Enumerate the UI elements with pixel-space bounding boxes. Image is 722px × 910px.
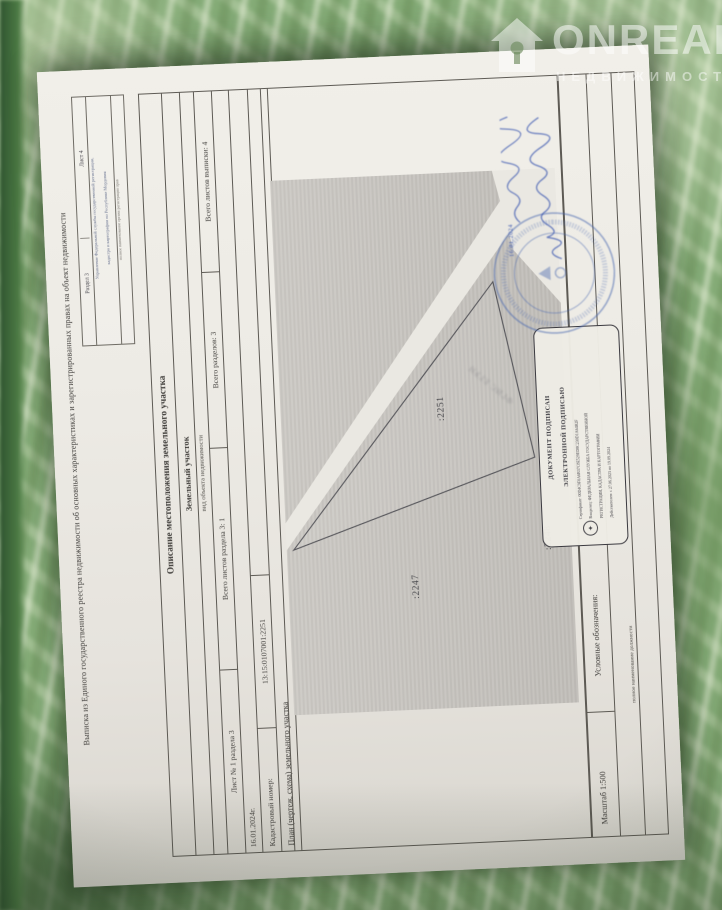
esign-box: ДОКУМЕНТ ПОДПИСАН ЭЛЕКТРОННОЙ ПОДПИСЬЮ ✦… [533,324,629,548]
parcel-label-2247: :2247 [411,574,422,599]
legend-label: Условные обозначения: [582,594,612,677]
document-paper: Выписка из Единого государственного реес… [37,45,685,888]
corner-sheet: Лист 4 [75,114,88,203]
document-content: Выписка из Единого государственного реес… [37,45,685,888]
brand-watermark: ONREALT [552,16,722,64]
house-icon [489,15,545,75]
carpet-dark-edge [0,0,26,910]
esign-header-line1: ДОКУМЕНТ ПОДПИСАН [541,328,559,546]
photo-canvas: Выписка из Единого государственного реес… [0,0,722,910]
brand-subtitle: НЕДВИЖИМОСТЬ [556,69,722,84]
parcel-label-2251: :2251 [436,396,447,421]
handwritten-signature-icon [498,75,599,269]
esign-emblem-icon: ✦ [583,520,599,536]
corner-info-box: Раздел 3 Лист 4 Управление Федеральной с… [71,94,135,346]
corner-section: Раздел 3 [80,238,93,328]
